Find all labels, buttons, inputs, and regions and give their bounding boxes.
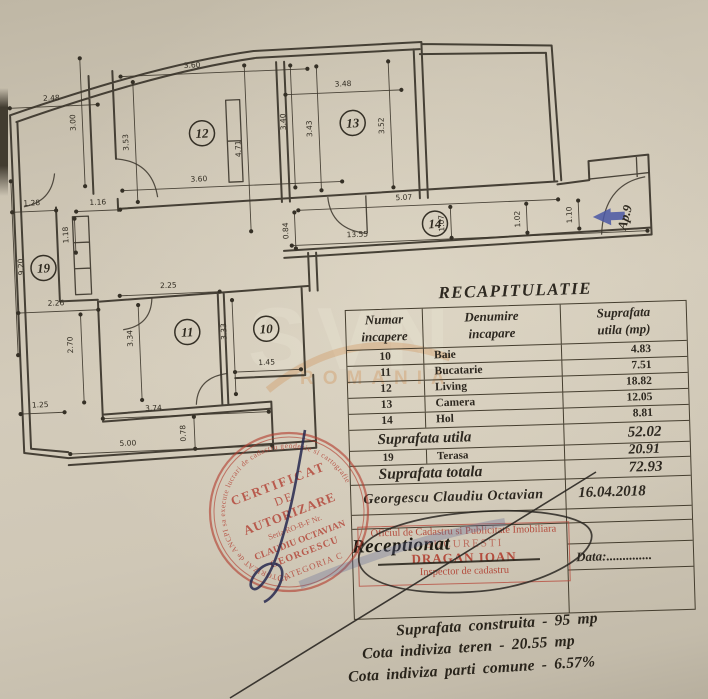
dimension-dot <box>319 188 323 192</box>
dimension-dot <box>242 63 246 67</box>
dimension-dot <box>230 298 234 302</box>
dimension-line <box>194 417 195 449</box>
dimension-label: 1.10 <box>564 206 574 223</box>
room-number: 14 <box>428 216 442 232</box>
dimension-label: 2.26 <box>47 298 64 308</box>
dimension-dot <box>8 106 12 110</box>
dimension-line <box>80 58 85 186</box>
dimension-dot <box>391 185 395 189</box>
dimension-line <box>316 66 321 190</box>
dimension-line <box>12 210 56 212</box>
dimension-dot <box>645 229 649 233</box>
dimension-dot <box>386 59 390 63</box>
dimension-label: 0.78 <box>178 425 188 442</box>
dimension-dot <box>292 210 296 214</box>
dimension-dot <box>118 294 122 298</box>
header-denumire: Denumireincapare <box>422 305 561 348</box>
dimension-dot <box>283 93 287 97</box>
dimension-line <box>450 207 451 238</box>
dimension-label: 9.20 <box>16 258 26 275</box>
dimension-dot <box>576 198 580 202</box>
dimension-dot <box>140 398 144 402</box>
dimension-line <box>290 66 295 188</box>
dimension-dot <box>340 179 344 183</box>
dimension-dot <box>290 243 294 247</box>
dimension-line <box>133 82 138 202</box>
header-suprafata: Suprafatautila (mp) <box>560 301 687 344</box>
dimension-label: 1.02 <box>513 210 523 227</box>
date-value: 16.04.2018 <box>565 476 692 509</box>
room-number: 19 <box>37 260 51 276</box>
dimension-label: 1.16 <box>89 197 106 207</box>
dimension-label: 3.48 <box>335 79 352 89</box>
dimension-dot <box>293 185 297 189</box>
dimension-label: 5.00 <box>119 438 136 448</box>
dimension-label: 4.71 <box>233 140 243 157</box>
dimension-dot <box>314 64 318 68</box>
dimension-line <box>235 369 301 372</box>
dimension-label: 5.07 <box>395 193 412 203</box>
dimension-line <box>18 310 98 313</box>
dimension-label: 3.34 <box>125 330 135 347</box>
header-numar: Numarincapere <box>346 309 423 350</box>
dimension-dot <box>234 392 238 396</box>
dimension-dot <box>233 370 237 374</box>
dimension-label: 3.60 <box>184 60 201 70</box>
dimension-line <box>244 65 251 231</box>
dimension-label: 3.53 <box>121 134 131 151</box>
dimension-dot <box>577 226 581 230</box>
dimension-label: 3.33 <box>219 323 229 340</box>
dimension-line <box>74 219 75 253</box>
dimension-line <box>526 204 527 233</box>
dimension-dot <box>249 229 253 233</box>
dimension-dot <box>83 184 87 188</box>
dimension-label: 2.25 <box>160 280 177 290</box>
dimension-dot <box>118 74 122 78</box>
room-number: 13 <box>346 115 360 131</box>
scanned-cadastral-document: SVN ROMANIA 3.602.483.003.534.713.601.28… <box>0 0 708 699</box>
dimension-label: 3.52 <box>376 117 386 134</box>
dimension-line <box>298 199 558 210</box>
dimension-label: 1.25 <box>32 400 49 410</box>
dimension-label: 3.60 <box>190 174 207 184</box>
dimension-line <box>10 105 98 109</box>
dimension-dot <box>120 188 124 192</box>
dimension-dot <box>399 88 403 92</box>
data-label: Data:.............. <box>568 540 694 571</box>
dimension-label: 1.45 <box>258 357 275 367</box>
dimension-label: 1.18 <box>61 226 71 243</box>
dimension-dot <box>556 197 560 201</box>
dimension-dot <box>74 209 78 213</box>
dimension-dot <box>524 202 528 206</box>
dimension-dot <box>101 416 105 420</box>
dimension-dot <box>136 303 140 307</box>
dimension-dot <box>296 208 300 212</box>
dimension-label: 13.55 <box>346 229 368 239</box>
dimension-line <box>138 305 142 400</box>
dimension-label: 3.74 <box>145 403 162 413</box>
dimension-line <box>232 300 236 394</box>
dimension-label: 2.48 <box>43 93 60 103</box>
dimension-label: 3.00 <box>68 114 78 131</box>
dimension-dot <box>62 410 66 414</box>
dimension-dot <box>136 200 140 204</box>
dimension-dot <box>448 205 452 209</box>
dimension-line <box>294 212 296 248</box>
dimension-dot <box>54 208 58 212</box>
dimension-dot <box>131 80 135 84</box>
dimension-dot <box>82 400 86 404</box>
dimension-dot <box>525 231 529 235</box>
dimension-dot <box>96 308 100 312</box>
dimension-line <box>285 90 401 95</box>
dimension-label: 3.43 <box>305 120 315 137</box>
dimension-line <box>76 210 120 212</box>
dimension-label: 1.28 <box>23 198 40 208</box>
dimension-line <box>80 315 84 403</box>
dimension-dot <box>267 410 271 414</box>
dimension-dot <box>288 63 292 67</box>
dimension-dot <box>299 367 303 371</box>
room-number: 11 <box>181 324 194 340</box>
dimension-dot <box>78 312 82 316</box>
dimension-label: 0.84 <box>281 222 291 239</box>
room-number: 10 <box>259 321 273 337</box>
dimension-label: 2.70 <box>65 336 75 353</box>
dimension-label: 3.40 <box>278 113 288 130</box>
dimension-line <box>578 201 579 229</box>
room-number: 12 <box>195 125 209 141</box>
dimension-line <box>21 412 65 414</box>
dimension-dot <box>78 56 82 60</box>
dimension-line <box>388 61 393 187</box>
round-stamp: AUTORIZAT de ANCPI sa execute lucrari de… <box>205 428 373 596</box>
dimension-dot <box>305 67 309 71</box>
dimension-dot <box>96 102 100 106</box>
